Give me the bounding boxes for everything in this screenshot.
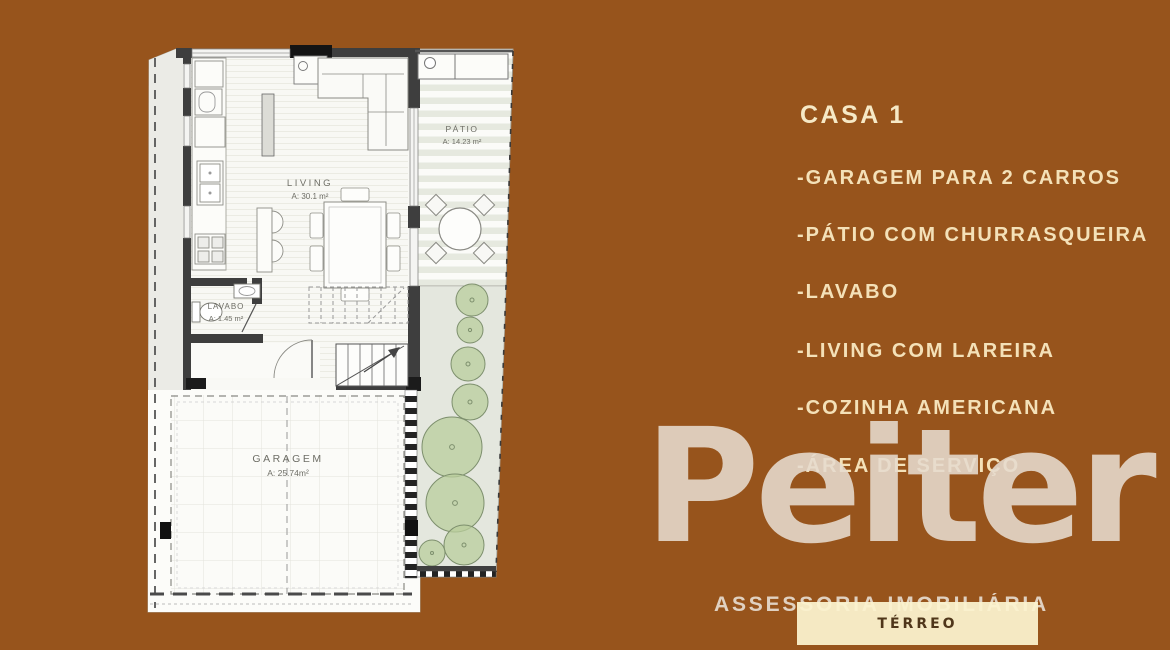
fridge — [195, 61, 223, 87]
chair — [310, 246, 323, 271]
toilet-tank — [192, 302, 200, 322]
churrasqueira-counter — [418, 54, 508, 79]
floor-plan: LIVING A: 30.1 m² PÁTIO A: 14.23 m² LAVA… — [0, 0, 1170, 650]
garagem-area: A: 25.74m² — [267, 468, 309, 478]
dining-table — [310, 188, 400, 301]
living-area: A: 30.1 m² — [292, 192, 329, 201]
garage-floor — [148, 390, 420, 612]
feature-living: -LIVING COM LAREIRA — [797, 340, 1055, 363]
chair — [387, 246, 400, 271]
feature-garagem: -GARAGEM PARA 2 CARROS — [797, 167, 1121, 190]
partition-wall — [262, 94, 274, 156]
feature-area-servico: -ÁREA DE SERVIÇO — [797, 455, 1020, 478]
floor-badge-label: TÉRREO — [877, 616, 957, 632]
post — [160, 522, 171, 539]
living-label: LIVING — [287, 178, 333, 189]
chair — [341, 188, 369, 201]
patio-area: A: 14.23 m² — [443, 137, 482, 146]
kitchen — [192, 58, 226, 270]
chair — [387, 213, 400, 238]
lavabo-area: A: 1.45 m² — [209, 314, 244, 323]
floor-badge: TÉRREO — [797, 602, 1038, 645]
patio-label: PÁTIO — [445, 124, 478, 134]
feature-lavabo: -LAVABO — [797, 281, 899, 304]
feature-patio: -PÁTIO COM CHURRASQUEIRA — [797, 224, 1148, 247]
unit-title: CASA 1 — [800, 101, 906, 130]
garagem-label: GARAGEM — [252, 453, 323, 465]
lavabo-label: LAVABO — [208, 302, 245, 311]
side-fence — [405, 390, 417, 578]
cabinet — [195, 117, 225, 147]
post — [405, 520, 418, 536]
chair — [310, 213, 323, 238]
garden-fence — [415, 566, 496, 577]
page: LIVING A: 30.1 m² PÁTIO A: 14.23 m² LAVA… — [0, 0, 1170, 650]
feature-cozinha: -COZINHA AMERICANA — [797, 397, 1057, 420]
